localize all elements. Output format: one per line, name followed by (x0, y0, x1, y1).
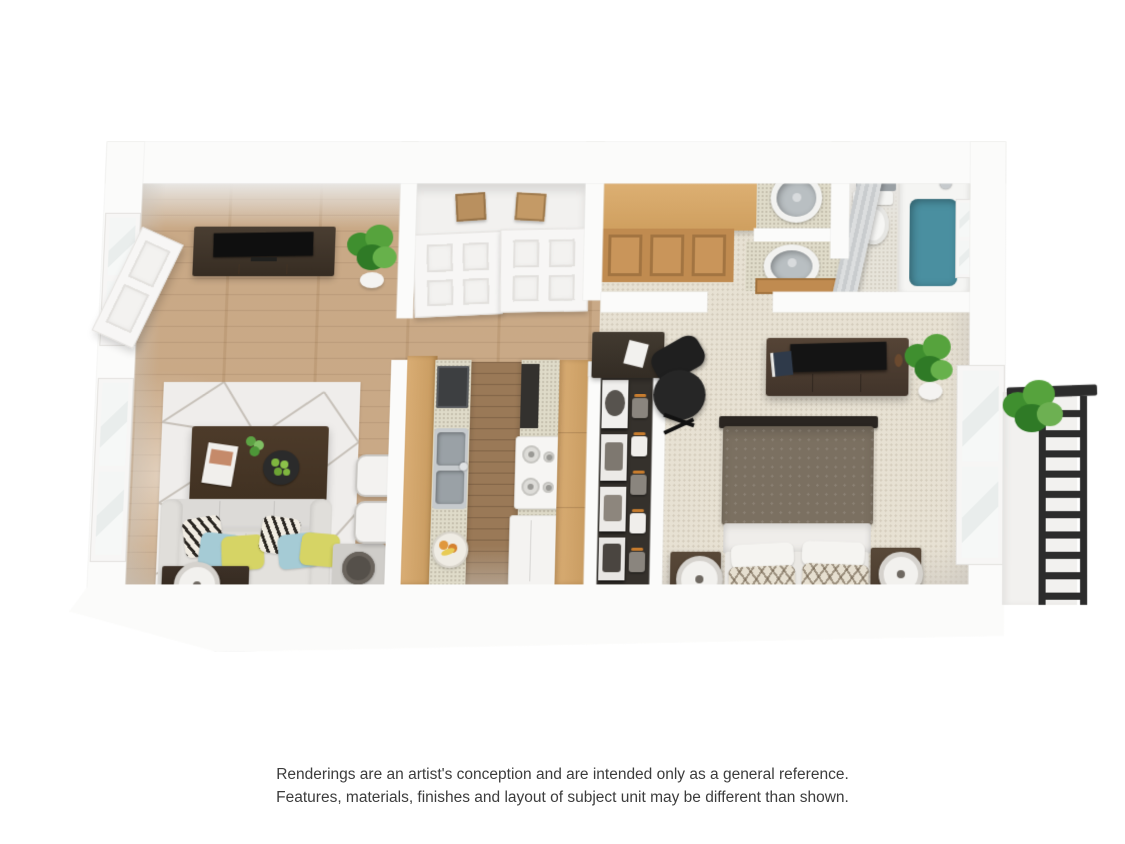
faucet (788, 258, 797, 267)
tv-screen (213, 232, 313, 257)
tv-stand (251, 257, 277, 261)
floorplan-page: Renderings are an artist's conception an… (0, 0, 1125, 844)
faucet (459, 463, 467, 471)
balcony-sliding-door (956, 365, 1005, 565)
closet-shelf (601, 380, 628, 428)
bedroom-wall (773, 292, 971, 312)
bed-duvet (722, 426, 874, 525)
console-drawer-seam (286, 264, 287, 274)
closet-sliding-door (413, 231, 502, 318)
disclaimer-line-2: Features, materials, finishes and layout… (0, 786, 1125, 809)
exterior-wall-top (106, 142, 1006, 183)
hat (605, 390, 626, 416)
bathtub-basin (909, 199, 957, 286)
range-hood-cabinet (520, 364, 540, 428)
stove (514, 436, 562, 509)
fruit-bowl (262, 450, 300, 484)
closet-shelf (600, 434, 627, 480)
storage-box (455, 192, 486, 222)
balcony-plant (1003, 378, 1065, 444)
plant-pot (360, 272, 384, 288)
tv-screen (790, 342, 887, 373)
magazine (201, 442, 238, 486)
exterior-wall-bottom (67, 584, 1004, 652)
hall-base-cabinets (602, 229, 735, 283)
closet-shelf (598, 538, 625, 581)
faucet (792, 193, 801, 202)
decor-item (895, 354, 903, 367)
tv-console (192, 227, 335, 277)
closet-shelf (599, 487, 626, 532)
living-room-plant (344, 225, 400, 292)
book (770, 351, 793, 377)
dishwasher (436, 366, 469, 408)
plant-pot (918, 382, 942, 400)
floorplan-3d-render (38, 142, 1105, 670)
bedroom-plant (904, 334, 957, 404)
disclaimer-text: Renderings are an artist's conception an… (0, 763, 1125, 809)
dresser (766, 338, 909, 396)
bedroom-wall (601, 292, 707, 312)
disclaimer-line-1: Renderings are an artist's conception an… (0, 763, 1125, 786)
storage-box (515, 192, 547, 221)
closet-sliding-door (500, 228, 588, 313)
console-drawer-seam (238, 264, 239, 274)
table-plant-sprig (245, 436, 266, 458)
office-chair (644, 336, 718, 436)
kitchen-double-sink (432, 428, 469, 509)
